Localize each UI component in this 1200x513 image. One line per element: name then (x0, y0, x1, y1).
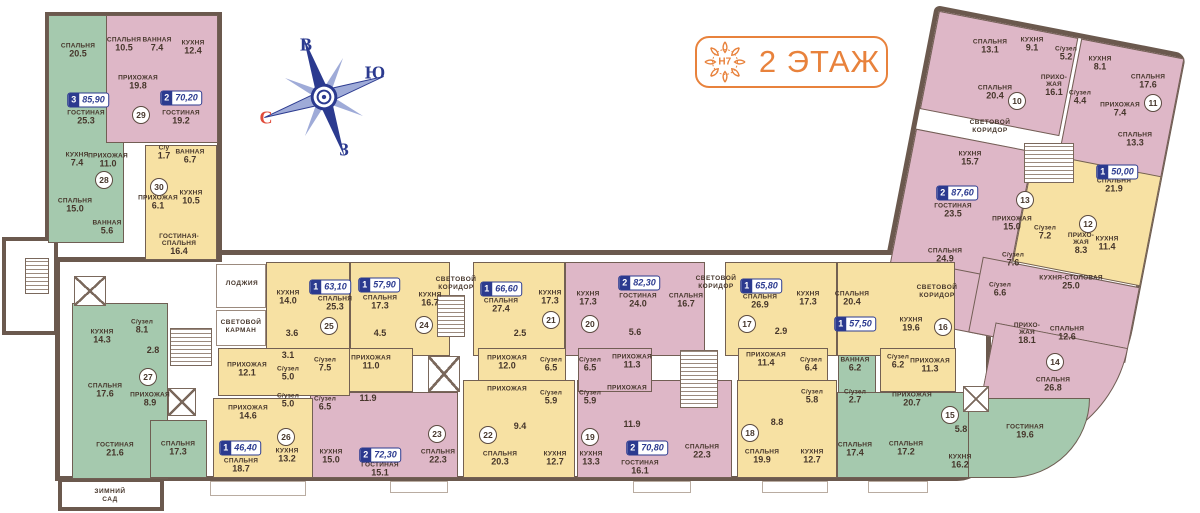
area-annotation: ЗИМНИЙ САД (94, 488, 125, 504)
compass-letter: Ю (365, 63, 385, 84)
h7-logo-text: Н7 (718, 57, 731, 68)
area-annotation: СВЕТОВОЙ КАРМАН (221, 319, 262, 335)
h7-logo-icon: Н7 (703, 40, 747, 84)
floor-plan-canvas: СПАЛЬНЯ13.1КУХНЯ9.1С/узел5.2ПРИХО- ЖАЯ16… (0, 0, 1200, 513)
floor-title-badge: Н7 2 ЭТАЖ (695, 36, 888, 88)
area-annotation: ЛОДЖИЯ (226, 280, 258, 288)
compass-letter: С (260, 108, 273, 129)
area-annotation: СВЕТОВОЙ КОРИДОР (436, 276, 477, 292)
compass-rose-icon (255, 28, 393, 166)
area-annotation: СВЕТОВОЙ КОРИДОР (970, 119, 1011, 135)
floor-title: 2 ЭТАЖ (759, 44, 880, 80)
annotations-layer: ЛОДЖИЯСВЕТОВОЙ КАРМАНСВЕТОВОЙ КОРИДОРСВЕ… (0, 0, 1200, 513)
area-annotation: СВЕТОВОЙ КОРИДОР (696, 275, 737, 291)
compass-letter: З (339, 140, 349, 161)
area-annotation: СВЕТОВОЙ КОРИДОР (917, 284, 958, 300)
compass-letter: В (300, 35, 312, 56)
